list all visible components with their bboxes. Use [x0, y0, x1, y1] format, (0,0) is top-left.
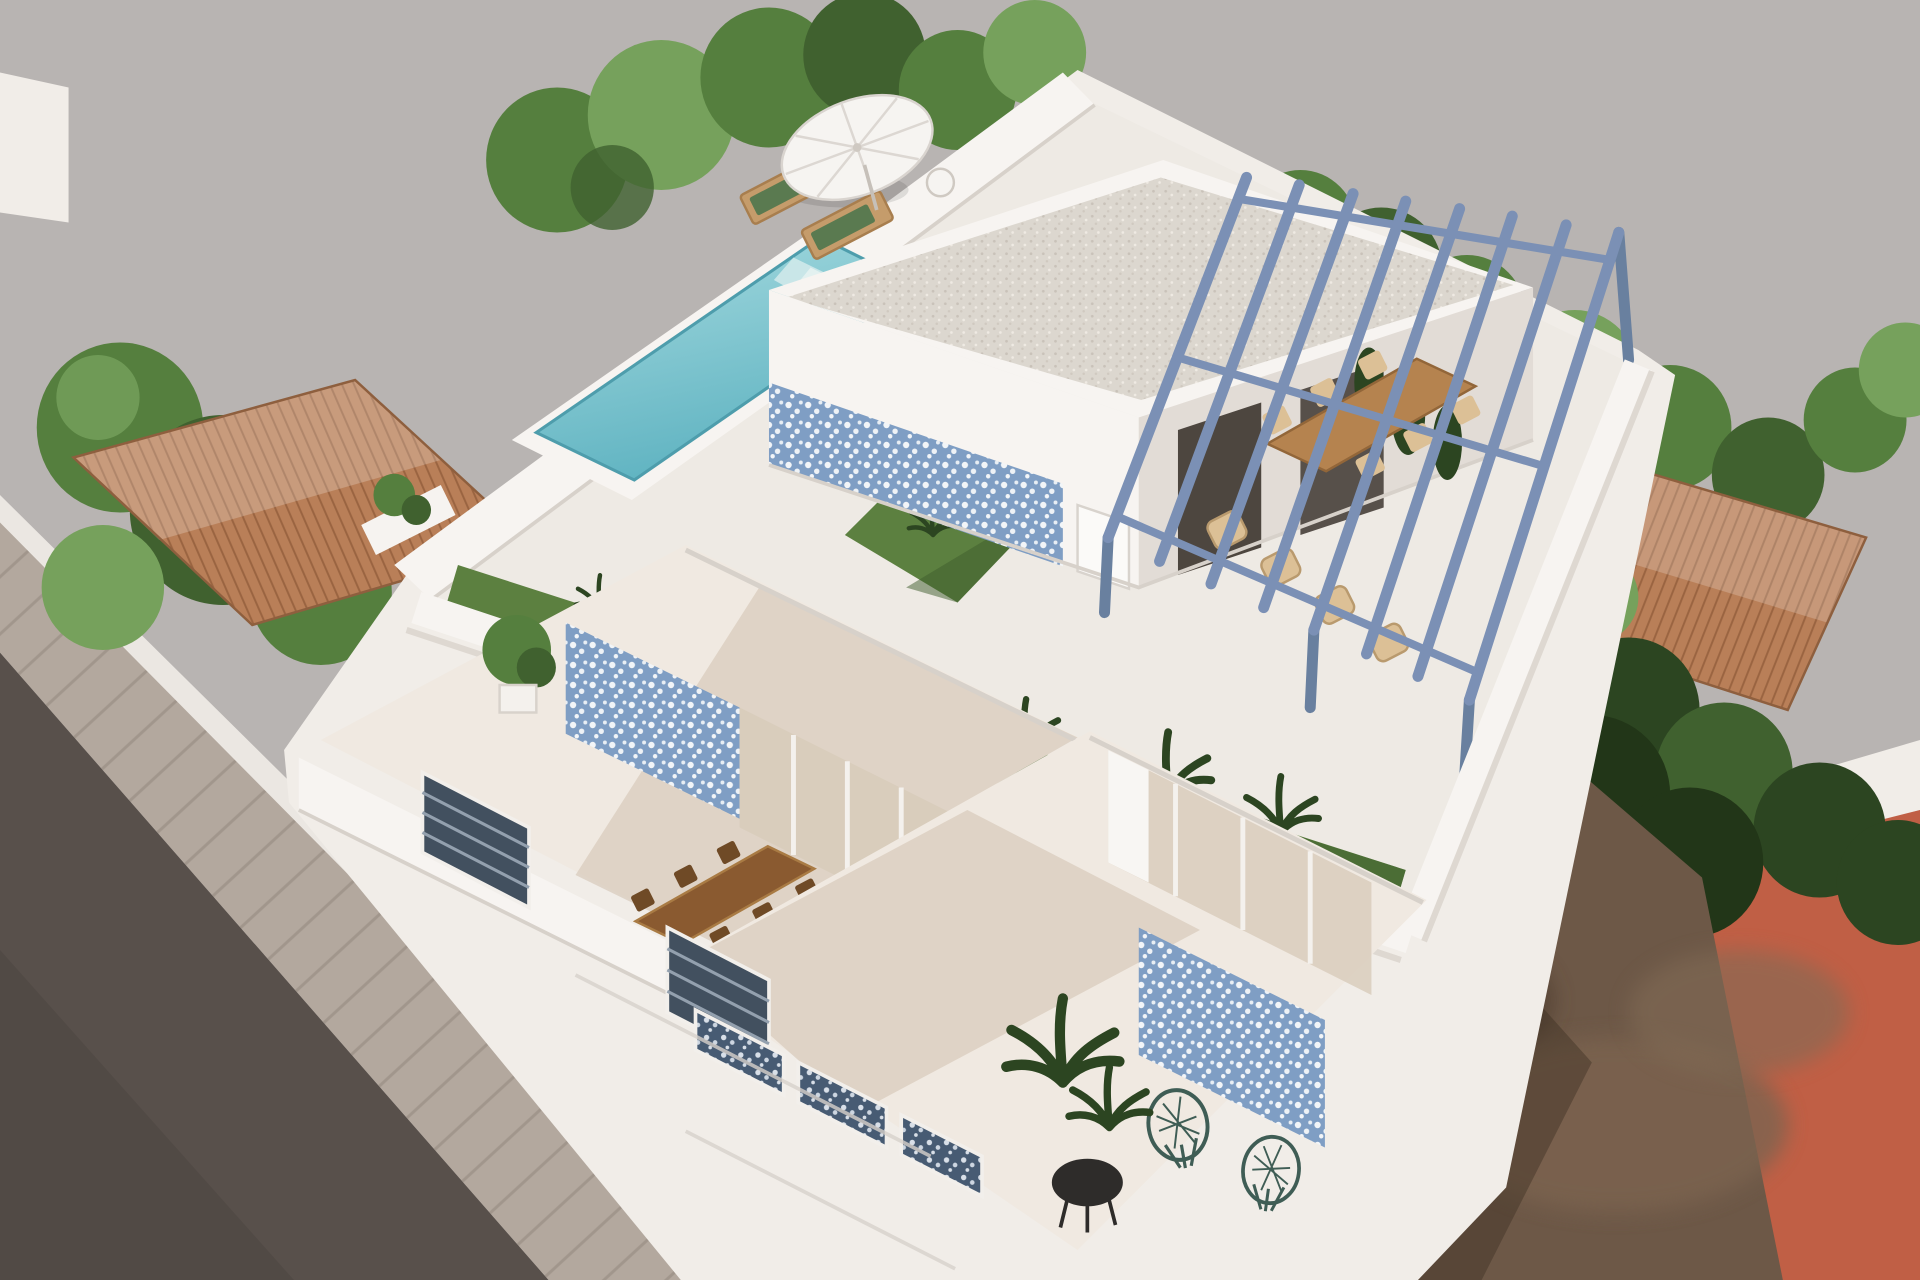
side-table	[927, 169, 954, 197]
render-viewport	[0, 0, 1920, 1280]
curtain	[1108, 750, 1148, 883]
planter	[500, 685, 537, 713]
wall-fragment	[0, 73, 69, 223]
render-canvas	[0, 0, 1920, 1280]
